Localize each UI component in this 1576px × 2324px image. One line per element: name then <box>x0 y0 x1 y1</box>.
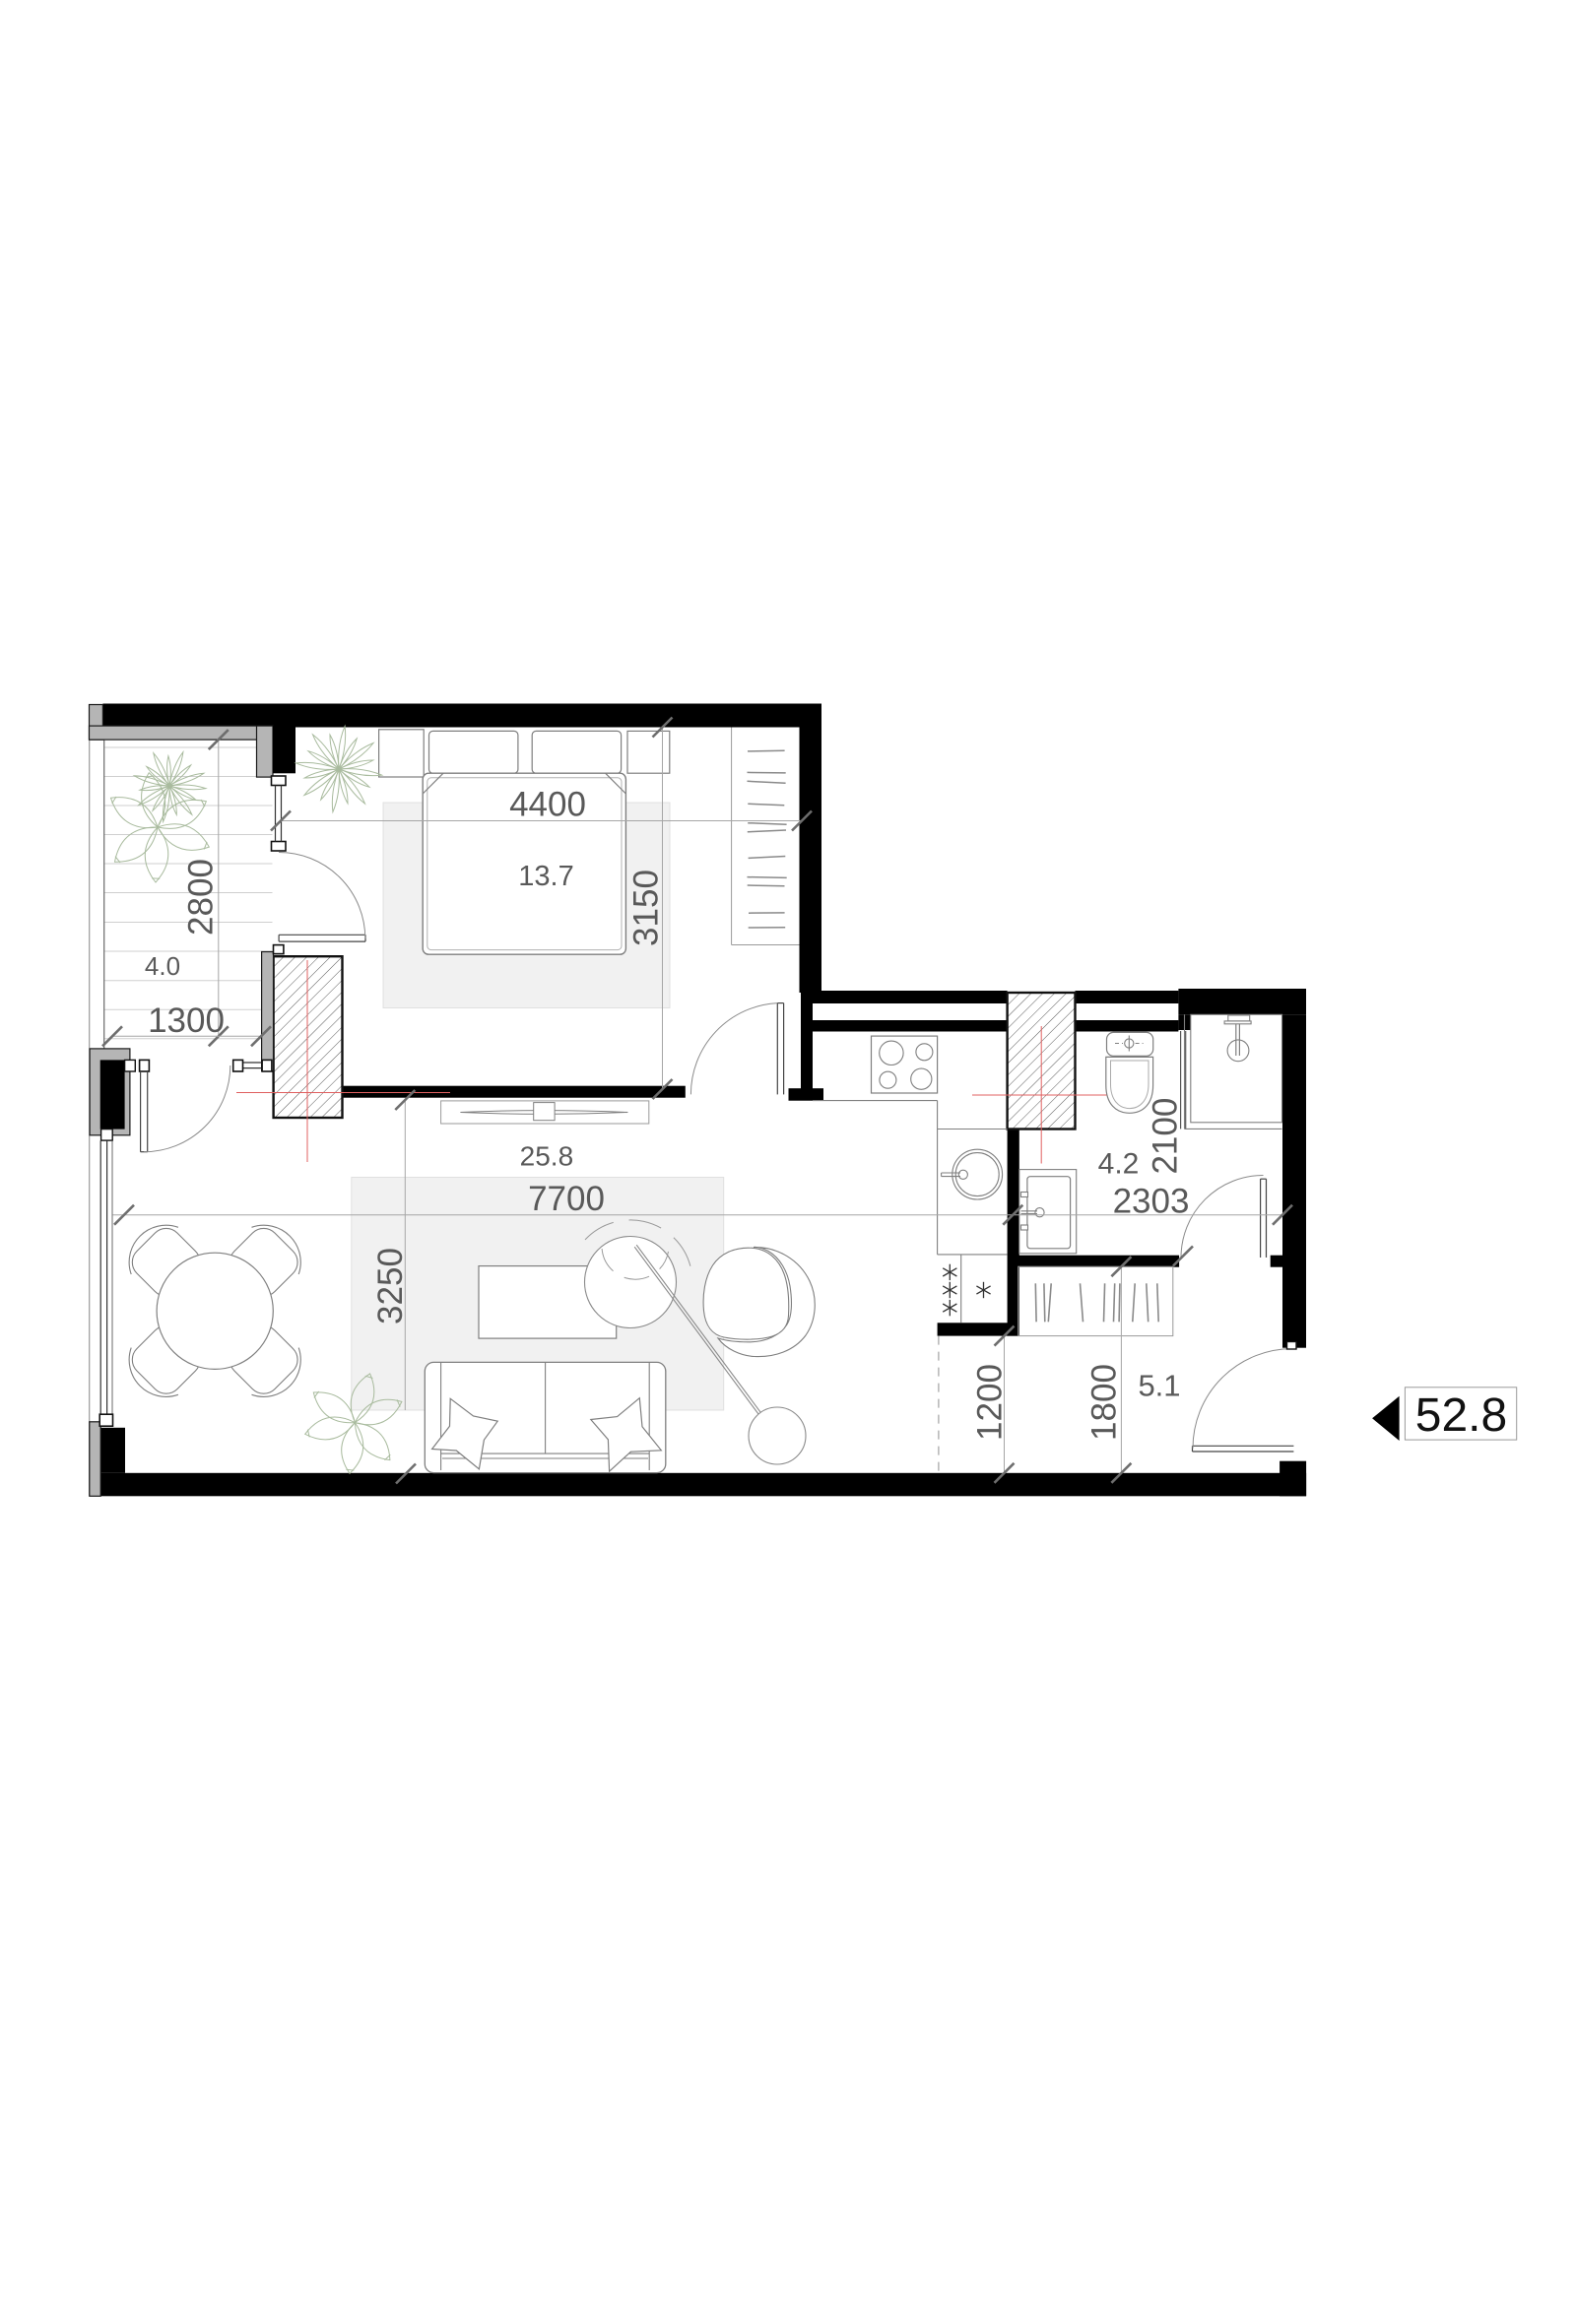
svg-text:3150: 3150 <box>627 870 666 946</box>
svg-text:25.8: 25.8 <box>520 1141 574 1172</box>
svg-text:2100: 2100 <box>1147 1098 1185 1175</box>
svg-text:7700: 7700 <box>528 1180 605 1218</box>
svg-text:4.2: 4.2 <box>1098 1148 1140 1181</box>
svg-text:1200: 1200 <box>971 1364 1010 1441</box>
svg-text:4400: 4400 <box>509 786 586 824</box>
svg-text:4.0: 4.0 <box>145 951 180 981</box>
svg-text:13.7: 13.7 <box>518 861 573 892</box>
svg-text:3250: 3250 <box>371 1248 410 1324</box>
svg-text:1300: 1300 <box>148 1001 225 1040</box>
svg-text:52.8: 52.8 <box>1415 1389 1507 1442</box>
svg-text:5.1: 5.1 <box>1138 1369 1180 1403</box>
svg-text:2303: 2303 <box>1113 1183 1190 1221</box>
svg-text:1800: 1800 <box>1085 1364 1124 1441</box>
svg-text:2800: 2800 <box>182 859 221 936</box>
